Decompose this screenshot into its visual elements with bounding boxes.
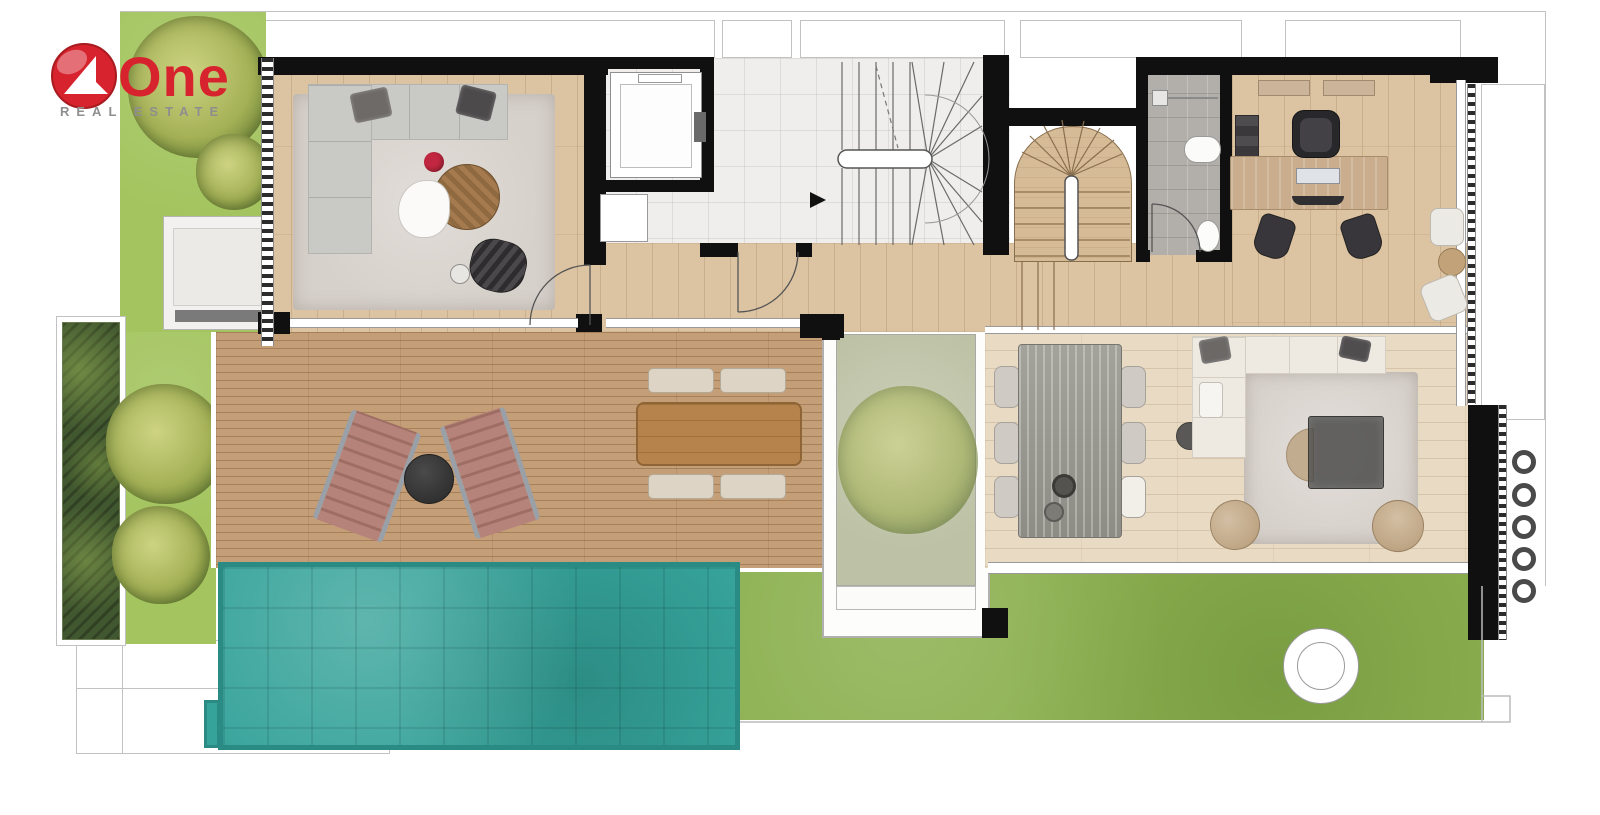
bench-cushion-1 <box>648 368 714 393</box>
roof-outline-d <box>1020 20 1242 58</box>
wall-bath-left <box>1136 57 1148 255</box>
wall-east <box>1468 405 1498 640</box>
logo-subtitle: REAL ESTATE <box>60 104 225 119</box>
dining-decor-vase <box>1044 502 1064 522</box>
wall-elevator-top <box>606 57 712 69</box>
dining-chair-l3 <box>994 476 1020 518</box>
wall-living-top <box>258 57 608 75</box>
detail-circle-5 <box>1512 579 1536 603</box>
garden-table-inner <box>1297 642 1345 690</box>
bench-cushion-3 <box>648 474 714 499</box>
logo-title: One <box>118 44 230 109</box>
site-outline-right <box>1545 11 1546 586</box>
detail-circle-4 <box>1512 547 1536 571</box>
planting-bed <box>62 322 120 640</box>
closet <box>600 194 648 242</box>
wall-office-top <box>1232 57 1438 75</box>
wall-bath-south-b <box>1196 250 1232 262</box>
shower-arm <box>1168 97 1218 99</box>
bench-cushion-2 <box>720 368 786 393</box>
elevator-cab <box>620 84 692 168</box>
elevator-door-gear <box>694 112 706 142</box>
pool-step <box>204 700 220 748</box>
column-courtyard-nw <box>822 318 840 340</box>
wall-stair-right <box>983 55 1009 255</box>
wood-staircase <box>1014 126 1132 262</box>
detail-circle-2 <box>1512 483 1536 507</box>
dining-chair-l1 <box>994 366 1020 408</box>
office-shelf-b <box>1323 80 1375 96</box>
tree-3 <box>106 384 226 504</box>
courtyard-sill <box>836 586 976 610</box>
wall-woodstair-top <box>1009 108 1141 126</box>
dining-chair-r3 <box>1120 476 1146 518</box>
insulation-hatch-east-upper <box>1467 84 1476 404</box>
pouf-red <box>424 152 444 172</box>
office-shelf-a <box>1258 80 1310 96</box>
desk-keyboard <box>1292 196 1344 205</box>
wall-stair-south-b <box>796 243 812 257</box>
lounge-pillow-1 <box>1198 336 1232 365</box>
dining-chair-r2 <box>1120 422 1146 464</box>
detail-circle-3 <box>1512 515 1536 539</box>
coffee-table-square <box>1308 416 1384 489</box>
executive-chair-seat <box>1300 118 1332 152</box>
window-living-south <box>290 318 578 328</box>
shower-valve <box>1152 90 1168 106</box>
lounger-table <box>404 454 454 504</box>
roof-outline-c <box>800 20 1005 58</box>
office-side-table <box>1438 248 1466 276</box>
sideboard <box>1235 115 1259 159</box>
roof-outline-a <box>265 20 715 58</box>
detail-circle-1 <box>1512 450 1536 474</box>
site-outline-top <box>120 11 1546 12</box>
roof-outline-e <box>1285 20 1461 58</box>
logo: One REAL ESTATE <box>50 40 290 130</box>
wall-elevator-bottom <box>592 180 714 192</box>
courtyard-tree <box>838 386 978 534</box>
window-hall-south <box>606 318 800 328</box>
window-lounge-south <box>988 562 1468 574</box>
column-courtyard-se <box>982 608 1008 638</box>
side-outline-column <box>1481 84 1545 420</box>
dining-chair-l2 <box>994 422 1020 464</box>
wall-stair-south-a <box>700 243 738 257</box>
side-table-small <box>450 264 470 284</box>
bench-cushion-4 <box>720 474 786 499</box>
window-lounge-north <box>985 326 1468 334</box>
wall-bath-top <box>1136 57 1232 75</box>
lounge-tray <box>1199 382 1223 418</box>
elevator-vent <box>638 74 682 83</box>
dining-chair-r1 <box>1120 366 1146 408</box>
swimming-pool <box>218 562 740 750</box>
armchair-white-1 <box>1430 208 1464 246</box>
washbasin <box>1196 220 1220 252</box>
roof-outline-b <box>722 20 792 58</box>
insulation-hatch-east-lower <box>1498 405 1507 640</box>
paving-joint-line-v <box>122 640 123 754</box>
bathtub <box>1184 136 1221 163</box>
side-table-triangle <box>398 180 450 238</box>
tree-4 <box>112 506 210 604</box>
logo-arrow-icon <box>50 42 120 112</box>
laptop <box>1296 168 1340 184</box>
outdoor-table <box>636 402 802 466</box>
dining-table <box>1018 344 1122 538</box>
wall-se-living <box>576 314 602 332</box>
wall-bath-south-a <box>1136 250 1150 262</box>
floor-plan: One REAL ESTATE <box>0 0 1600 815</box>
dining-decor-bowl <box>1052 474 1076 498</box>
balcony-inner <box>173 228 265 306</box>
